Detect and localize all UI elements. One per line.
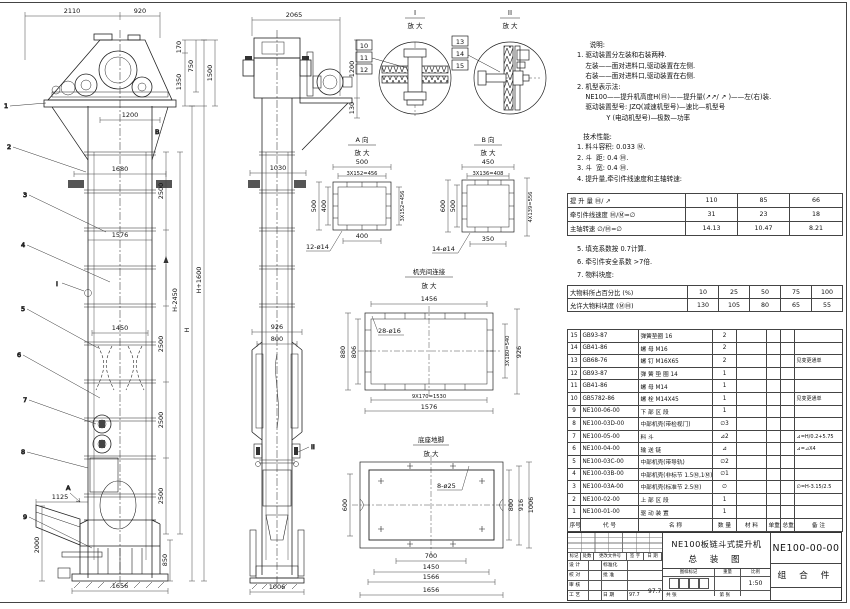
- part-code: GB41-86: [581, 380, 639, 393]
- part-remark: ⊿=H/0.2+5.75: [795, 430, 843, 443]
- stamp-box: [699, 578, 709, 589]
- part-code: GB5782-86: [581, 392, 639, 405]
- lump-row: 大物料所占百分比 (%) 10255075100: [568, 286, 843, 299]
- sheets-total: 共 张: [663, 591, 717, 600]
- part-unit-weight: [767, 405, 781, 418]
- parts-header: 序号: [568, 518, 581, 531]
- part-code: NE100-05-00: [581, 430, 639, 443]
- parts-header-row: 序号 代 号 名 称 数 量 材 料 单重 总重 备 注: [568, 518, 843, 531]
- part-no: 1: [568, 506, 581, 519]
- parts-row: 6 NE100-04-00 输 送 链 ⊿ ⊿=⊿X4: [568, 443, 843, 456]
- part-qty: 2: [713, 330, 737, 343]
- parts-header: 数 量: [713, 518, 737, 531]
- sig-label: 校 对: [568, 571, 589, 580]
- part-name: 中部机壳(带检视门): [639, 418, 713, 431]
- parts-row: 7 NE100-05-00 料 斗 ⊿2 ⊿=H/0.2+5.75: [568, 430, 843, 443]
- part-unit-weight: [767, 380, 781, 393]
- capacity-table: 提 升 量 Ⓜ/ ↗ 110 85 66 牵引件线速度 Ⓜ/Ⓜ=∅ 31 23 …: [567, 193, 843, 236]
- part-no: 3: [568, 481, 581, 494]
- sheets-row: 共 张 第 张: [663, 591, 770, 600]
- sig-label: 设 计: [568, 561, 589, 570]
- part-total-weight: [781, 330, 795, 343]
- parts-rows: 15 GB93-87 弹簧垫圈 16 2 14 GB41-86 螺 母 M16 …: [568, 330, 843, 519]
- part-material: [737, 506, 767, 519]
- part-remark: 见变更通单: [795, 392, 843, 405]
- part-no: 11: [568, 380, 581, 393]
- drawing-kind: 组 合 件: [771, 564, 841, 588]
- part-total-weight: [781, 367, 795, 380]
- part-qty: ⊿: [713, 443, 737, 456]
- parts-row: 9 NE100-06-00 下 部 区 段 1: [568, 405, 843, 418]
- part-material: [737, 392, 767, 405]
- performance-line: 4. 提升量,牵引件线速度和主轴转速:: [577, 174, 682, 184]
- part-material: [737, 443, 767, 456]
- sig-label: 日 期: [602, 591, 628, 600]
- part-total-weight: [781, 430, 795, 443]
- part-code: NE100-06-00: [581, 405, 639, 418]
- part-total-weight: [781, 481, 795, 494]
- stamp-box: [689, 578, 699, 589]
- part-no: 15: [568, 330, 581, 343]
- part-material: [737, 455, 767, 468]
- part-no: 12: [568, 367, 581, 380]
- part-code: GB68-76: [581, 355, 639, 368]
- capacity-value: 14.13: [686, 222, 738, 236]
- note-line: 说明:: [577, 40, 771, 50]
- part-material: [737, 330, 767, 343]
- part-remark: [795, 342, 843, 355]
- parts-row: 13 GB68-76 螺 钉 M16X65 2 见变更通单: [568, 355, 843, 368]
- signature-row: 校 对 批 准: [568, 571, 662, 581]
- note-line: 右装——面对进料口,驱动装置在右侧.: [577, 71, 771, 81]
- drawing-sheet: 2110 920 170 750 1350 1500 1200 1680 157…: [0, 0, 850, 609]
- sig-cell: [589, 581, 602, 590]
- part-remark: ⊿=⊿X4: [795, 443, 843, 456]
- lump-value: 100: [812, 286, 843, 299]
- sheet-number: 第 张: [717, 591, 771, 600]
- part-name: 中部机壳(非标节 1.5Ⓜ,1Ⓜ): [639, 468, 713, 481]
- part-name: 螺 母 M16: [639, 342, 713, 355]
- part-no: 13: [568, 355, 581, 368]
- capacity-value: 66: [790, 194, 843, 208]
- part-unit-weight: [767, 481, 781, 494]
- capacity-value: 110: [686, 194, 738, 208]
- part-remark: [795, 380, 843, 393]
- part-qty: 1: [713, 392, 737, 405]
- performance-line: 3. 斗 宽: 0.4 Ⓜ.: [577, 163, 682, 173]
- parts-row: 14 GB41-86 螺 母 M16 2: [568, 342, 843, 355]
- part-material: [737, 493, 767, 506]
- lump-label: 允许大物料块度 (ⓂⓂ): [568, 299, 688, 312]
- part-material: [737, 342, 767, 355]
- lump-value: 55: [812, 299, 843, 312]
- title-block: 标记 处数 更改文件号 签 字 日 期 设 计 标准化 校 对 批 准 审 核: [567, 532, 842, 601]
- part-qty: ∅2: [713, 455, 737, 468]
- drawing-date: 97.7: [648, 588, 661, 595]
- part-unit-weight: [767, 430, 781, 443]
- stamp-label: 图样标记: [663, 569, 715, 577]
- signature-row: 设 计 标准化: [568, 561, 662, 571]
- part-code: GB93-87: [581, 330, 639, 343]
- note-line: 6. 牵引件安全系数 >7倍.: [577, 256, 652, 269]
- part-total-weight: [781, 342, 795, 355]
- lump-value: 130: [688, 299, 719, 312]
- part-qty: ∅: [713, 481, 737, 494]
- part-name: 中部机壳(标准节 2.5Ⓜ): [639, 481, 713, 494]
- sig-value: [628, 571, 662, 580]
- part-remark: [795, 418, 843, 431]
- sig-label: 标准化: [602, 561, 628, 570]
- part-total-weight: [781, 455, 795, 468]
- part-qty: 2: [713, 355, 737, 368]
- lump-value: 75: [781, 286, 812, 299]
- part-unit-weight: [767, 493, 781, 506]
- part-material: [737, 430, 767, 443]
- empty-cell: [771, 588, 841, 600]
- lump-row: 允许大物料块度 (ⓂⓂ) 130105806555: [568, 299, 843, 312]
- part-code: NE100-02-00: [581, 493, 639, 506]
- parts-header: 备 注: [795, 518, 843, 531]
- part-remark: ∅=H-3.15/2.5: [795, 481, 843, 494]
- part-qty: ∅3: [713, 418, 737, 431]
- capacity-value: 85: [738, 194, 790, 208]
- part-no: 8: [568, 418, 581, 431]
- part-unit-weight: [767, 455, 781, 468]
- part-qty: ⊿2: [713, 430, 737, 443]
- lump-value: 105: [719, 299, 750, 312]
- part-no: 6: [568, 443, 581, 456]
- lump-value: 80: [750, 299, 781, 312]
- part-qty: 1: [713, 367, 737, 380]
- performance-line: 1. 料斗容积: 0.033 Ⓜ.: [577, 142, 682, 152]
- capacity-value: 18: [790, 208, 843, 222]
- part-no: 10: [568, 392, 581, 405]
- part-name: 螺 母 M14: [639, 380, 713, 393]
- parts-row: 15 GB93-87 弹簧垫圈 16 2: [568, 330, 843, 343]
- part-name: 下 部 区 段: [639, 405, 713, 418]
- part-code: NE100-03B-00: [581, 468, 639, 481]
- sig-cell: [589, 591, 602, 600]
- part-qty: 2: [713, 342, 737, 355]
- lump-label: 大物料所占百分比 (%): [568, 286, 688, 299]
- notes-block: 说明:1. 驱动装置分左装和右装两种. 左装——面对进料口,驱动装置在左侧. 右…: [577, 40, 771, 123]
- part-material: [737, 380, 767, 393]
- rev-header: 签 字: [627, 553, 644, 560]
- part-qty: ∅1: [713, 468, 737, 481]
- performance-line: 2. 斗 距: 0.4 Ⓜ.: [577, 153, 682, 163]
- part-unit-weight: [767, 506, 781, 519]
- part-unit-weight: [767, 468, 781, 481]
- part-total-weight: [781, 418, 795, 431]
- parts-list-table: 15 GB93-87 弹簧垫圈 16 2 14 GB41-86 螺 母 M16 …: [567, 329, 843, 532]
- sig-label: 批 准: [602, 571, 628, 580]
- part-remark: [795, 405, 843, 418]
- parts-row: 8 NE100-03D-00 中部机壳(带检视门) ∅3: [568, 418, 843, 431]
- note-line: 2. 机型表示法:: [577, 82, 771, 92]
- parts-row: 12 GB93-87 弹 簧 垫 圈 14 1: [568, 367, 843, 380]
- scale-label: 比例: [741, 569, 770, 577]
- sig-label: 审 核: [568, 581, 589, 590]
- capacity-row: 提 升 量 Ⓜ/ ↗ 110 85 66: [568, 194, 843, 208]
- note-line: NE100——提升机高度H(Ⓜ)——提升量(↗↗/ ↗ )——左(右)装.: [577, 92, 771, 102]
- part-unit-weight: [767, 367, 781, 380]
- part-material: [737, 367, 767, 380]
- part-remark: 见变更通单: [795, 355, 843, 368]
- capacity-label: 主轴转速 ∅/Ⓜ=∅: [568, 222, 686, 236]
- part-remark: [795, 367, 843, 380]
- sig-value: [628, 561, 662, 570]
- parts-header: 单重: [767, 518, 781, 531]
- capacity-value: 10.47: [738, 222, 790, 236]
- part-total-weight: [781, 405, 795, 418]
- stamp-value-row: 1:50: [663, 577, 770, 591]
- part-material: [737, 481, 767, 494]
- rev-header: 标记: [568, 553, 581, 560]
- revision-grid: [568, 533, 662, 553]
- part-qty: 1: [713, 493, 737, 506]
- stamp-header-row: 图样标记 重量 比例: [663, 569, 770, 577]
- part-remark: [795, 455, 843, 468]
- part-no: 9: [568, 405, 581, 418]
- drawing-title-line1: NE100板链斗式提升机: [663, 538, 770, 550]
- part-total-weight: [781, 392, 795, 405]
- part-qty: 1: [713, 380, 737, 393]
- drawing-number: NE100-00-00: [771, 533, 841, 564]
- rev-header: 日 期: [644, 553, 662, 560]
- part-total-weight: [781, 506, 795, 519]
- part-remark: [795, 506, 843, 519]
- rev-header: 处数: [581, 553, 594, 560]
- stamp-box: [669, 578, 679, 589]
- part-unit-weight: [767, 443, 781, 456]
- capacity-label: 提 升 量 Ⓜ/ ↗: [568, 194, 686, 208]
- right-panel: 说明:1. 驱动装置分左装和右装两种. 左装——面对进料口,驱动装置在左侧. 右…: [565, 0, 845, 609]
- lump-value: 25: [719, 286, 750, 299]
- part-remark: [795, 468, 843, 481]
- part-total-weight: [781, 355, 795, 368]
- parts-row: 5 NE100-03C-00 中部机壳(带导轨) ∅2: [568, 455, 843, 468]
- note-line: 5. 填充系数按 0.7计算.: [577, 243, 652, 256]
- part-no: 7: [568, 430, 581, 443]
- part-material: [737, 468, 767, 481]
- lump-size-table: 大物料所占百分比 (%) 10255075100 允许大物料块度 (ⓂⓂ) 13…: [567, 285, 843, 312]
- part-remark: [795, 493, 843, 506]
- part-name: 上 部 区 段: [639, 493, 713, 506]
- note-line: Y (电动机型号)—极数—功率: [577, 113, 771, 123]
- part-material: [737, 355, 767, 368]
- part-total-weight: [781, 380, 795, 393]
- part-code: NE100-03C-00: [581, 455, 639, 468]
- part-no: 2: [568, 493, 581, 506]
- part-no: 5: [568, 455, 581, 468]
- note-line: 驱动装置型号: JZQ(减速机型号)—速比—机型号: [577, 102, 771, 112]
- part-remark: [795, 330, 843, 343]
- part-unit-weight: [767, 418, 781, 431]
- part-name: 螺 钉 M16X65: [639, 355, 713, 368]
- lump-value: 10: [688, 286, 719, 299]
- parts-row: 1 NE100-01-00 驱 动 装 置 1: [568, 506, 843, 519]
- capacity-value: 23: [738, 208, 790, 222]
- part-no: 14: [568, 342, 581, 355]
- parts-header: 总重: [781, 518, 795, 531]
- part-name: 弹 簧 垫 圈 14: [639, 367, 713, 380]
- parts-header: 材 料: [737, 518, 767, 531]
- rev-header: 更改文件号: [594, 553, 627, 560]
- title-block-right: NE100-00-00 组 合 件: [771, 533, 841, 600]
- part-material: [737, 418, 767, 431]
- part-name: 弹簧垫圈 16: [639, 330, 713, 343]
- part-unit-weight: [767, 392, 781, 405]
- title-block-center: NE100板链斗式提升机 总 装 图 图样标记 重量 比例 1:50 共 张 第…: [663, 533, 771, 600]
- part-qty: 1: [713, 506, 737, 519]
- part-code: GB41-86: [581, 342, 639, 355]
- note-line: 7. 物料块度:: [577, 269, 652, 282]
- revision-header-row: 标记 处数 更改文件号 签 字 日 期: [568, 553, 662, 561]
- sig-cell: [589, 571, 602, 580]
- part-unit-weight: [767, 355, 781, 368]
- parts-row: 4 NE100-03B-00 中部机壳(非标节 1.5Ⓜ,1Ⓜ) ∅1: [568, 468, 843, 481]
- sig-label: [602, 581, 628, 590]
- performance-line: 技术性能:: [577, 132, 682, 142]
- part-qty: 1: [713, 405, 737, 418]
- part-no: 4: [568, 468, 581, 481]
- part-total-weight: [781, 468, 795, 481]
- note-line: 1. 驱动装置分左装和右装两种.: [577, 50, 771, 60]
- part-code: NE100-03A-00: [581, 481, 639, 494]
- part-name: 驱 动 装 置: [639, 506, 713, 519]
- parts-row: 10 GB5782-86 螺 栓 M14X45 1 见变更通单: [568, 392, 843, 405]
- notes-block-2: 5. 填充系数按 0.7计算.6. 牵引件安全系数 >7倍.7. 物料块度:: [577, 243, 652, 282]
- sig-cell: [589, 561, 602, 570]
- part-name: 料 斗: [639, 430, 713, 443]
- part-code: NE100-04-00: [581, 443, 639, 456]
- capacity-label: 牵引件线速度 Ⓜ/Ⓜ=∅: [568, 208, 686, 222]
- performance-block: 技术性能:1. 料斗容积: 0.033 Ⓜ.2. 斗 距: 0.4 Ⓜ.3. 斗…: [577, 132, 682, 184]
- lump-value: 50: [750, 286, 781, 299]
- parts-row: 3 NE100-03A-00 中部机壳(标准节 2.5Ⓜ) ∅ ∅=H-3.15…: [568, 481, 843, 494]
- parts-header: 代 号: [581, 518, 639, 531]
- drawing-title-line2: 总 装 图: [663, 553, 770, 565]
- part-material: [737, 405, 767, 418]
- part-unit-weight: [767, 330, 781, 343]
- parts-row: 2 NE100-02-00 上 部 区 段 1: [568, 493, 843, 506]
- parts-row: 11 GB41-86 螺 母 M14 1: [568, 380, 843, 393]
- part-name: 螺 栓 M14X45: [639, 392, 713, 405]
- part-name: 中部机壳(带导轨): [639, 455, 713, 468]
- parts-header: 名 称: [639, 518, 713, 531]
- lump-value: 65: [781, 299, 812, 312]
- capacity-row: 牵引件线速度 Ⓜ/Ⓜ=∅ 31 23 18: [568, 208, 843, 222]
- part-total-weight: [781, 493, 795, 506]
- capacity-row: 主轴转速 ∅/Ⓜ=∅ 14.13 10.47 8.21: [568, 222, 843, 236]
- capacity-value: 31: [686, 208, 738, 222]
- stamp-box: [679, 578, 689, 589]
- part-code: NE100-01-00: [581, 506, 639, 519]
- part-total-weight: [781, 443, 795, 456]
- weight-label: 重量: [715, 569, 741, 577]
- part-code: NE100-03D-00: [581, 418, 639, 431]
- note-line: 左装——面对进料口,驱动装置在左侧.: [577, 61, 771, 71]
- part-code: GB93-87: [581, 367, 639, 380]
- sig-label: 工 艺: [568, 591, 589, 600]
- drawing-title: NE100板链斗式提升机 总 装 图: [663, 533, 770, 569]
- part-unit-weight: [767, 342, 781, 355]
- capacity-value: 8.21: [790, 222, 843, 236]
- part-name: 输 送 链: [639, 443, 713, 456]
